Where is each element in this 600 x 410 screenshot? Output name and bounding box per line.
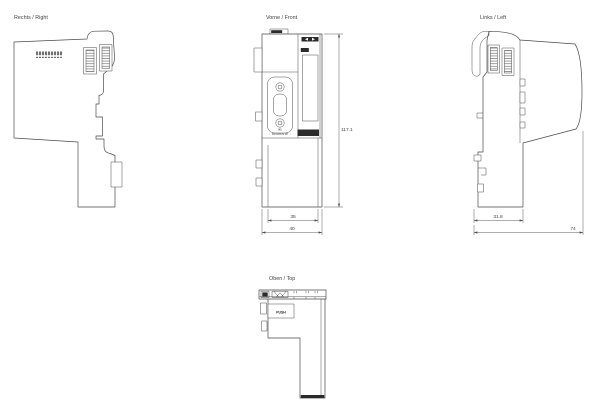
push-latch: PUSH (268, 304, 294, 318)
dim-depth-rail: 31.8 (474, 209, 523, 223)
push-label: PUSH (276, 311, 286, 315)
dim-height-value: 117.1 (341, 127, 353, 133)
dim-width-body: 35 (268, 209, 318, 223)
view-front-title: Vorne / Front (266, 15, 298, 21)
dim-depth-total-value: 74 (570, 226, 576, 232)
dim-depth-total: 74 (474, 131, 583, 235)
view-right-title: Rechts / Right (14, 15, 48, 21)
drawing-page: Rechts / Right Vorne / Front (0, 0, 600, 410)
module-print-label-illegible (36, 52, 62, 59)
dim-width-body-value: 35 (290, 214, 296, 220)
label-window (303, 55, 319, 121)
left-hook-1 (256, 160, 262, 168)
terminal-tab-3 (520, 108, 525, 115)
view-top-title: Oben / Top (269, 276, 295, 282)
port-bus-label: PROFIBUS DP (272, 133, 289, 136)
terminal-tab-4 (520, 122, 525, 128)
terminal-tab-1 (520, 79, 525, 86)
small-marking-strip (301, 48, 309, 52)
view-left: Links / Left 31.8 (472, 15, 583, 235)
view-right: Rechts / Right (14, 15, 122, 207)
dim-width-total-value: 40 (289, 226, 295, 232)
left-edge-hook-2 (474, 155, 481, 161)
bus-connector-left-2 (502, 48, 514, 76)
dim-depth-rail-value: 31.8 (493, 214, 503, 220)
technical-drawing: Rechts / Right Vorne / Front (0, 0, 600, 410)
din-hook (472, 31, 489, 76)
bus-connector-right-2 (100, 45, 113, 72)
din-rail-clip (111, 162, 122, 187)
left-hook-2 (256, 178, 262, 186)
bus-connector-left-1 (488, 45, 500, 73)
top-release-tab (270, 29, 288, 34)
top-backplane-band (259, 290, 326, 299)
view-left-title: Links / Left (480, 15, 507, 21)
slide-strip (302, 37, 319, 42)
dim-width-total: 40 (262, 209, 322, 235)
top-protrusion-2 (262, 321, 268, 331)
dsub-connector (268, 77, 293, 133)
view-front: Vorne / Front X1 PROFIBUS DP (254, 15, 353, 235)
left-edge-hook-3 (478, 168, 486, 175)
left-edge-hook-1 (477, 113, 483, 118)
order-number-strip (298, 130, 320, 137)
port-x1-label: X1 (278, 128, 282, 132)
left-protrusion (254, 48, 262, 72)
left-edge-hook-4 (478, 184, 484, 192)
top-end-cap (301, 395, 325, 398)
top-protrusion-1 (261, 303, 267, 314)
dim-height: 117.1 (324, 34, 353, 207)
bus-connector-right-1 (84, 48, 97, 75)
left-hook-small (256, 112, 263, 121)
terminal-tab-2 (520, 92, 525, 103)
view-top: Oben / Top PUSH (259, 276, 326, 398)
